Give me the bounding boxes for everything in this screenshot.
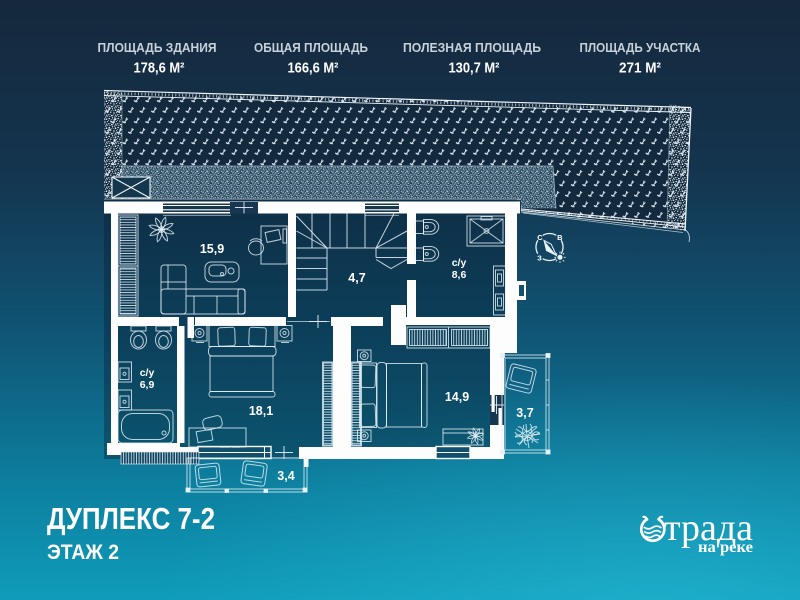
svg-text:ПОЛЕЗНАЯ ПЛОЩАДЬ: ПОЛЕЗНАЯ ПЛОЩАДЬ [403,40,541,55]
svg-text:178,6 М²: 178,6 М² [134,61,185,77]
svg-text:с/у: с/у [140,367,155,379]
svg-text:130,7 М²: 130,7 М² [449,61,500,77]
svg-text:ДУПЛЕКС 7-2: ДУПЛЕКС 7-2 [47,502,215,536]
svg-text:166,6 М²: 166,6 М² [288,61,339,77]
svg-text:6,9: 6,9 [140,379,155,391]
svg-text:15,9: 15,9 [200,242,224,256]
svg-text:14,9: 14,9 [445,390,469,404]
svg-text:271 М²: 271 М² [619,61,661,77]
svg-text:18,1: 18,1 [249,404,273,418]
svg-text:С: С [537,233,543,242]
svg-text:ОБЩАЯ ПЛОЩАДЬ: ОБЩАЯ ПЛОЩАДЬ [254,40,368,55]
svg-text:8,6: 8,6 [452,269,467,281]
svg-text:ПЛОЩАДЬ УЧАСТКА: ПЛОЩАДЬ УЧАСТКА [580,40,702,55]
svg-text:ПЛОЩАДЬ ЗДАНИЯ: ПЛОЩАДЬ ЗДАНИЯ [98,40,217,55]
svg-text:З: З [537,254,542,263]
svg-text:с/у: с/у [452,257,467,269]
svg-text:на реке: на реке [698,539,753,556]
svg-text:3,4: 3,4 [277,469,294,483]
svg-text:4,7: 4,7 [348,271,365,285]
svg-text:ЭТАЖ 2: ЭТАЖ 2 [47,541,119,564]
svg-text:В: В [557,233,563,242]
svg-text:3,7: 3,7 [516,406,533,420]
